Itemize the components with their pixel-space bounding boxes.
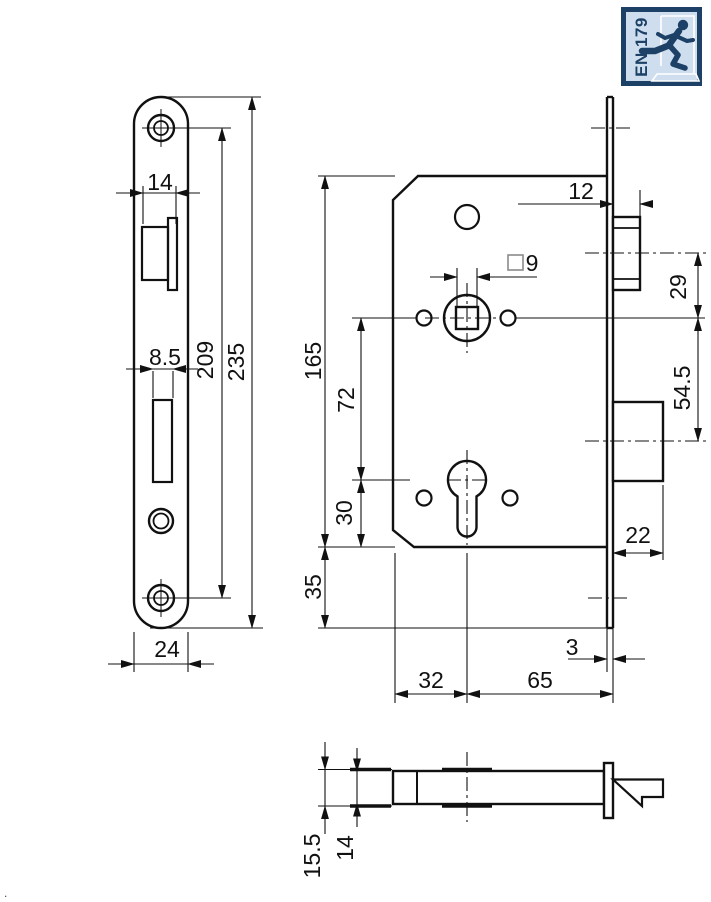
screw-hole-top-icon	[142, 109, 180, 147]
label-deadbolt-projection: 22	[625, 522, 651, 548]
lock-technical-drawing: 14 8.5 24 209 235 165 72 30 35 12 9 29 5…	[0, 0, 711, 902]
faceplate-side	[607, 97, 613, 628]
label-centre-distance: 72	[333, 387, 359, 413]
drawing-canvas: 14 8.5 24 209 235 165 72 30 35 12 9 29 5…	[0, 0, 711, 902]
section-extension-lines	[318, 770, 392, 807]
case-body-section	[393, 771, 604, 804]
fixing-hole	[417, 491, 432, 506]
latch-face-strip	[168, 218, 177, 290]
screw-hole-bottom-icon	[142, 579, 180, 617]
square-symbol	[508, 255, 523, 270]
label-backset: 65	[527, 667, 553, 693]
faceplate-section	[604, 763, 613, 818]
label-cyl-to-bottom: 30	[331, 500, 357, 526]
fixing-hole-icon	[149, 509, 173, 533]
fixing-hole	[503, 491, 518, 506]
badge-label: EN 179	[632, 17, 651, 77]
label-screw-centers: 209	[192, 341, 218, 379]
latch-opening	[142, 227, 168, 280]
label-latch-projection: 12	[568, 178, 594, 204]
label-case-height: 165	[300, 342, 326, 380]
label-overall-depth: 15.5	[299, 834, 325, 879]
horizontal-section-view	[318, 742, 663, 834]
en179-badge: EN 179	[624, 10, 700, 84]
lock-case-view	[318, 97, 706, 703]
centerlines	[425, 128, 706, 598]
label-latch-width: 14	[147, 169, 173, 195]
boss-bars	[350, 770, 492, 807]
label-bottom-margin: 35	[300, 574, 326, 600]
deadbolt-slot	[153, 400, 172, 482]
label-plate-thickness: 3	[566, 634, 579, 660]
label-faceplate-width: 24	[154, 636, 180, 662]
label-spindle-square: 9	[526, 250, 539, 276]
label-faceplate-height: 235	[223, 343, 249, 381]
label-follower-to-deadbolt: 54.5	[669, 366, 695, 411]
page-corner-dot: .	[4, 886, 7, 900]
label-slot-width: 8.5	[149, 344, 181, 370]
case-top-hole	[455, 205, 479, 229]
fixing-hole	[501, 311, 516, 326]
faceplate-front-view	[108, 97, 263, 672]
label-case-thickness: 14	[332, 835, 358, 861]
latch-bolt-top-view	[613, 780, 663, 807]
label-latch-to-follower: 29	[665, 274, 691, 300]
label-rear-backset: 32	[418, 667, 444, 693]
